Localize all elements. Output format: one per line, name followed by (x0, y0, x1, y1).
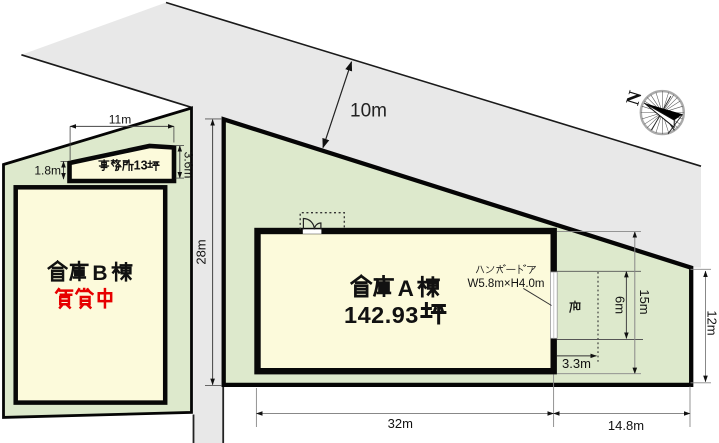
svg-text:A: A (398, 276, 414, 301)
svg-text:3.3m: 3.3m (562, 356, 591, 371)
svg-text:13: 13 (134, 159, 148, 173)
svg-text:142.93: 142.93 (344, 302, 419, 328)
svg-text:6m: 6m (613, 296, 628, 314)
svg-text:28m: 28m (193, 239, 208, 264)
svg-text:1.8m: 1.8m (34, 164, 61, 178)
svg-text:3.6m: 3.6m (182, 152, 196, 179)
svg-text:W5.8m×H4.0m: W5.8m×H4.0m (467, 278, 544, 290)
svg-text:B: B (92, 262, 107, 285)
svg-text:10m: 10m (350, 100, 387, 121)
svg-text:15m: 15m (637, 289, 652, 314)
svg-text:12m: 12m (705, 310, 719, 335)
svg-text:32m: 32m (388, 416, 413, 431)
svg-text:11m: 11m (109, 113, 131, 127)
svg-text:14.8m: 14.8m (608, 418, 644, 433)
